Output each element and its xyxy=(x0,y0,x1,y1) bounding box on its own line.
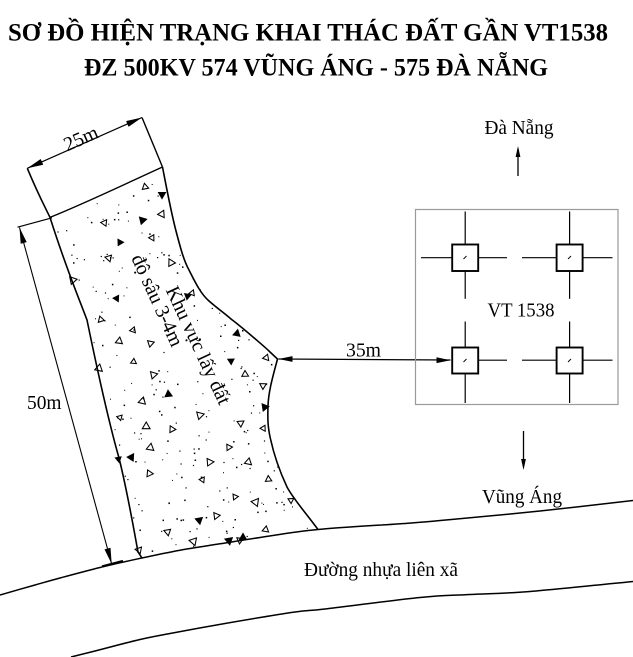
svg-text:35m: 35m xyxy=(346,340,381,362)
svg-text:SƠ ĐỒ HIỆN TRẠNG KHAI THÁC ĐẤT: SƠ ĐỒ HIỆN TRẠNG KHAI THÁC ĐẤT GẦN VT153… xyxy=(8,18,608,47)
svg-text:ĐZ 500KV 574 VŨNG ÁNG - 575 ĐÀ: ĐZ 500KV 574 VŨNG ÁNG - 575 ĐÀ NẴNG xyxy=(84,52,548,82)
svg-text:VT 1538: VT 1538 xyxy=(488,299,555,321)
svg-text:50m: 50m xyxy=(27,392,62,414)
svg-text:Đường nhựa liên xã: Đường nhựa liên xã xyxy=(304,559,458,581)
svg-text:Đà Nẵng: Đà Nẵng xyxy=(485,117,554,139)
svg-text:Vũng Áng: Vũng Áng xyxy=(482,485,562,508)
